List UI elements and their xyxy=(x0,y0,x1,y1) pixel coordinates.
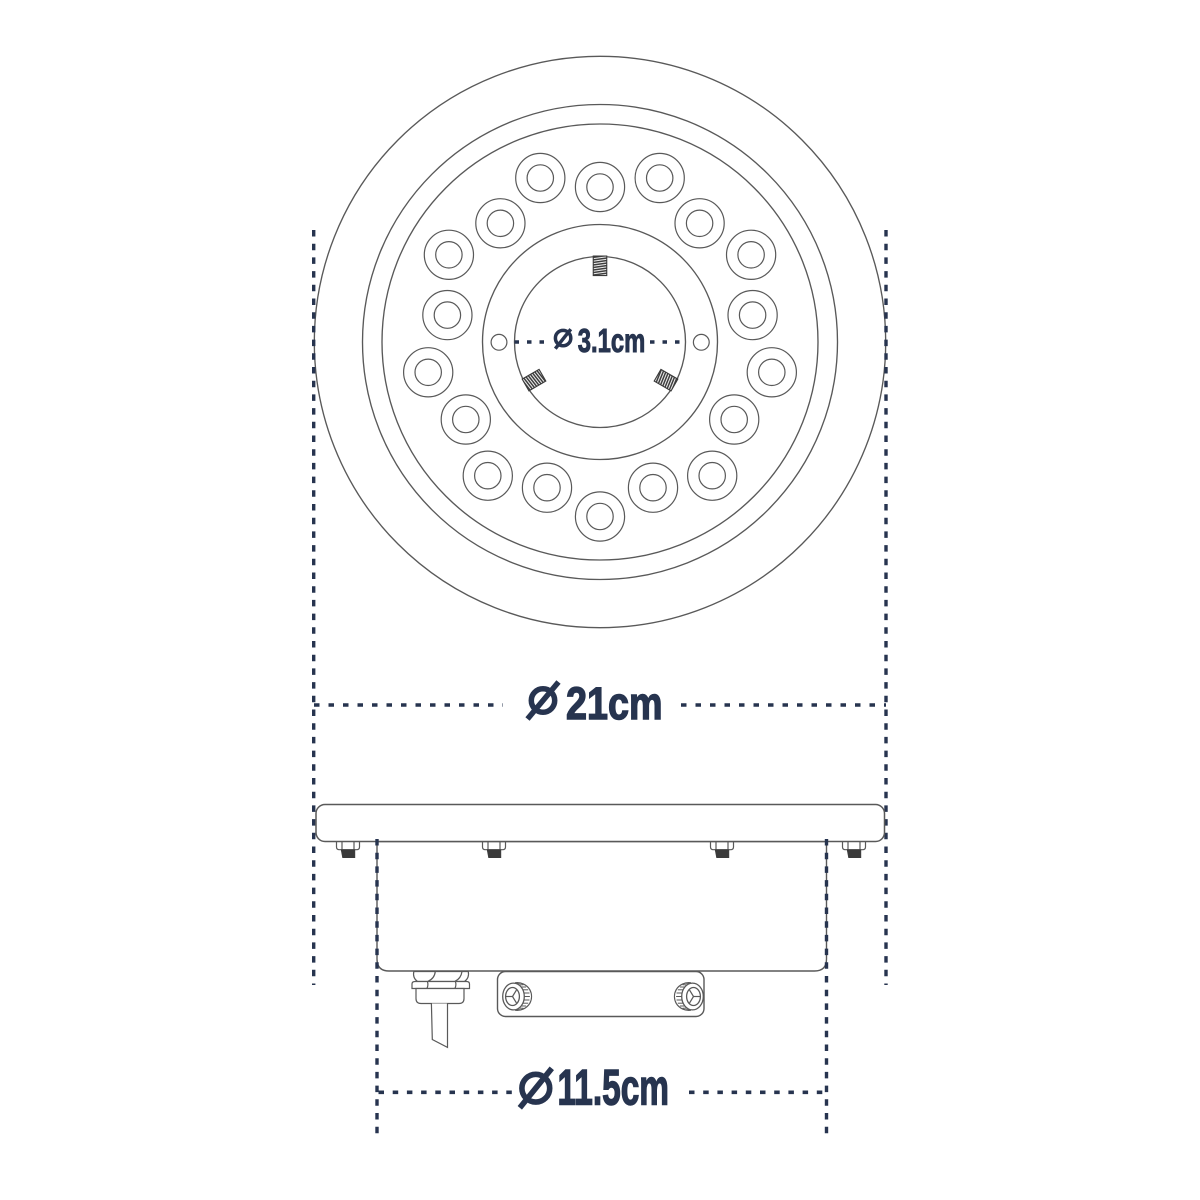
svg-text:11.5cm: 11.5cm xyxy=(558,1060,670,1116)
svg-text:21cm: 21cm xyxy=(566,678,663,729)
svg-text:3.1cm: 3.1cm xyxy=(578,322,646,359)
